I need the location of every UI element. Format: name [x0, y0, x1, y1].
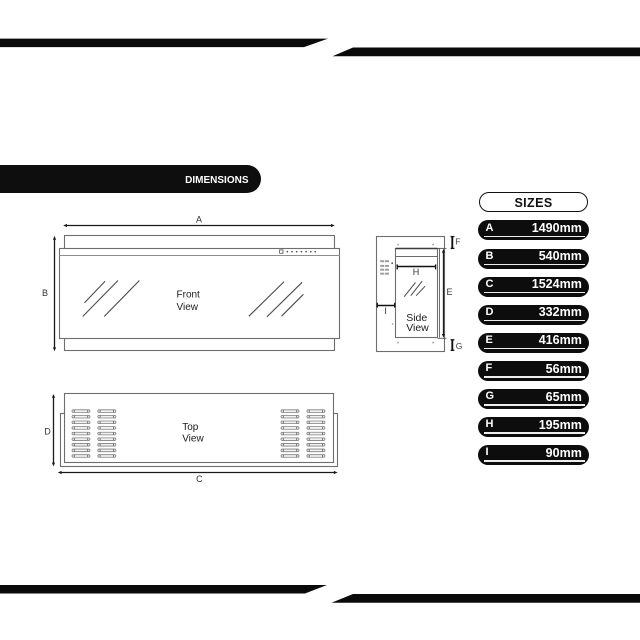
svg-text:Top: Top — [182, 422, 199, 433]
svg-text:C: C — [196, 474, 203, 484]
svg-text:A: A — [196, 214, 202, 224]
svg-text:I: I — [384, 306, 387, 316]
svg-text:H: H — [413, 267, 420, 277]
svg-text:E: E — [446, 287, 452, 297]
svg-text:View: View — [182, 434, 204, 445]
svg-text:F: F — [455, 237, 460, 247]
svg-text:Front: Front — [177, 290, 201, 301]
svg-text:D: D — [44, 426, 51, 436]
svg-text:B: B — [42, 288, 48, 298]
svg-text:View: View — [177, 302, 199, 313]
svg-text:G: G — [456, 341, 463, 351]
svg-text:View: View — [406, 322, 429, 334]
